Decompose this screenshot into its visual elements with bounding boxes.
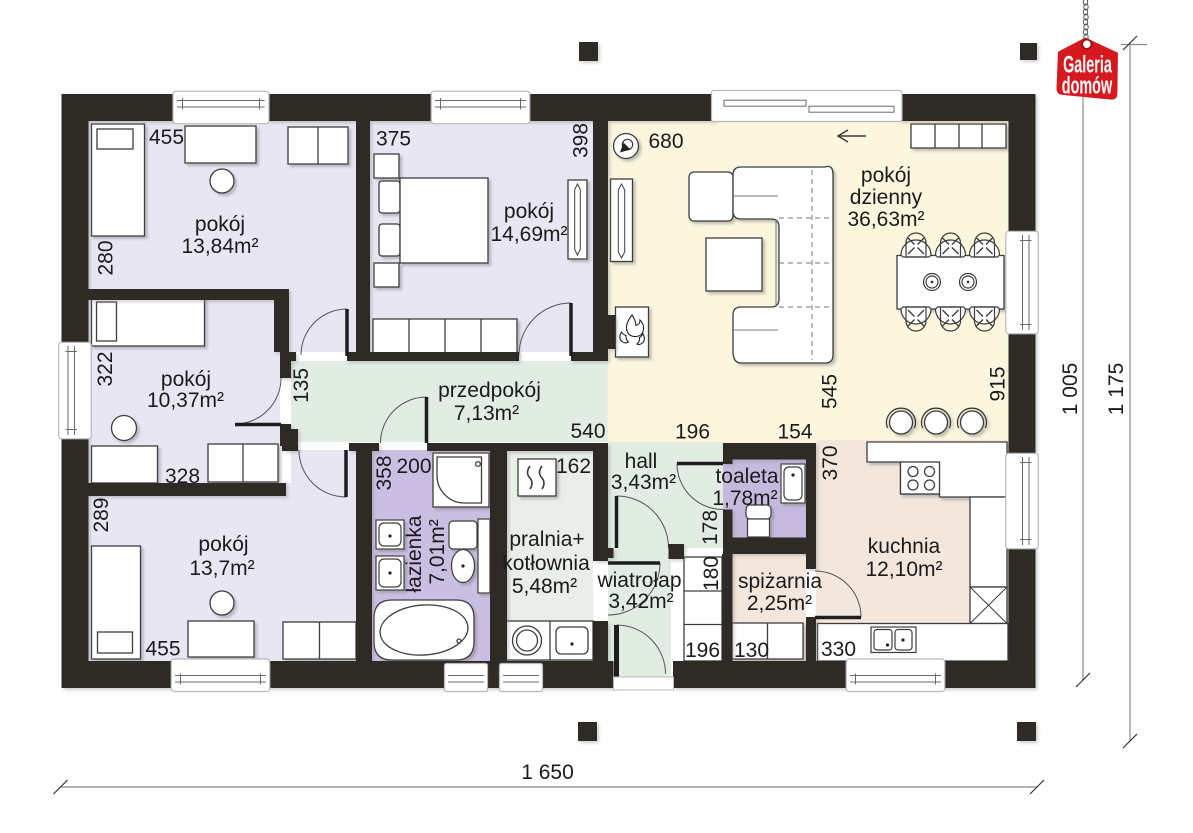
svg-text:2,25m²: 2,25m² xyxy=(747,592,812,615)
svg-text:pralnia+: pralnia+ xyxy=(509,528,584,551)
svg-text:pokój: pokój xyxy=(161,368,211,391)
svg-text:135: 135 xyxy=(290,368,313,403)
svg-text:wiatrołap: wiatrołap xyxy=(596,569,681,592)
svg-text:154: 154 xyxy=(777,421,812,444)
svg-text:398: 398 xyxy=(570,123,593,158)
svg-text:pokój: pokój xyxy=(195,213,245,236)
svg-text:196: 196 xyxy=(685,639,720,662)
svg-text:3,43m²: 3,43m² xyxy=(611,471,676,494)
svg-text:7,13m²: 7,13m² xyxy=(454,402,519,425)
svg-text:dzienny: dzienny xyxy=(850,186,923,209)
svg-text:13,84m²: 13,84m² xyxy=(181,235,258,258)
svg-text:375: 375 xyxy=(376,128,411,151)
svg-text:680: 680 xyxy=(648,130,683,153)
svg-text:358: 358 xyxy=(373,455,396,490)
svg-text:5,48m²: 5,48m² xyxy=(512,575,577,598)
svg-text:3,42m²: 3,42m² xyxy=(608,590,673,613)
svg-text:455: 455 xyxy=(149,126,184,149)
svg-text:280: 280 xyxy=(95,240,118,275)
svg-text:545: 545 xyxy=(819,374,842,409)
svg-text:kotłownia: kotłownia xyxy=(502,552,590,575)
svg-text:330: 330 xyxy=(821,638,856,661)
svg-text:328: 328 xyxy=(165,465,200,488)
svg-text:13,7m²: 13,7m² xyxy=(189,557,254,580)
svg-text:12,10m²: 12,10m² xyxy=(865,558,942,581)
svg-text:1 175: 1 175 xyxy=(1105,363,1128,416)
svg-text:pokój: pokój xyxy=(861,164,911,187)
svg-text:36,63m²: 36,63m² xyxy=(847,208,924,231)
svg-text:1,78m²: 1,78m² xyxy=(712,487,777,510)
svg-text:178: 178 xyxy=(699,510,722,545)
svg-text:pokój: pokój xyxy=(198,533,248,556)
svg-text:455: 455 xyxy=(145,638,180,661)
svg-text:10,37m²: 10,37m² xyxy=(147,389,224,412)
svg-text:kuchnia: kuchnia xyxy=(868,535,941,558)
svg-text:200: 200 xyxy=(396,455,431,478)
svg-text:370: 370 xyxy=(819,445,842,480)
svg-text:322: 322 xyxy=(94,351,117,386)
svg-text:14,69m²: 14,69m² xyxy=(490,223,567,246)
svg-text:540: 540 xyxy=(570,420,605,443)
svg-text:domów: domów xyxy=(1062,73,1113,100)
svg-text:toaleta: toaleta xyxy=(715,465,778,488)
svg-text:pokój: pokój xyxy=(504,200,554,223)
svg-text:łazienka: łazienka xyxy=(403,515,426,592)
svg-text:162: 162 xyxy=(556,455,591,478)
svg-text:180: 180 xyxy=(700,556,723,591)
svg-text:przedpokój: przedpokój xyxy=(438,379,541,402)
svg-text:7,01m²: 7,01m² xyxy=(426,519,449,584)
svg-text:915: 915 xyxy=(987,366,1010,401)
svg-text:130: 130 xyxy=(734,639,769,662)
svg-text:1 005: 1 005 xyxy=(1059,363,1082,416)
svg-text:spiżarnia: spiżarnia xyxy=(738,570,822,593)
svg-text:1 650: 1 650 xyxy=(521,761,574,784)
svg-text:289: 289 xyxy=(90,497,113,532)
svg-text:196: 196 xyxy=(675,421,710,444)
svg-text:hall: hall xyxy=(625,450,658,473)
